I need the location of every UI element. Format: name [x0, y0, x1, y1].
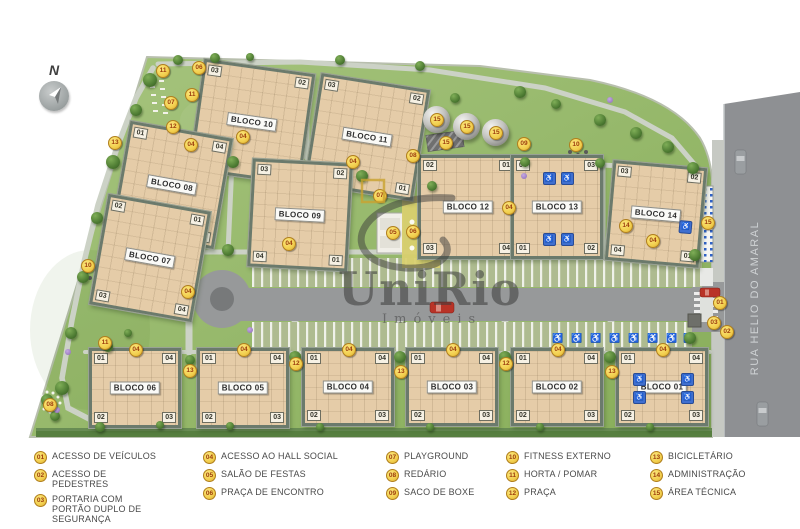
legend-item-number: 09 — [386, 487, 399, 500]
svg-text:♿: ♿ — [666, 332, 677, 343]
legend-item: 13BICICLETÁRIO — [650, 451, 790, 464]
legend-item: 15ÁREA TÉCNICA — [650, 487, 790, 500]
legend-item: 10FITNESS EXTERNO — [506, 451, 641, 464]
legend-item-number: 10 — [506, 451, 519, 464]
side-technical-panel — [700, 186, 713, 322]
legend-column: 13BICICLETÁRIO14ADMINISTRAÇÃO15ÁREA TÉCN… — [650, 451, 790, 505]
legend-item-number: 08 — [386, 469, 399, 482]
street-road: RUA HELIO DO AMARAL — [712, 92, 800, 437]
svg-text:♿: ♿ — [609, 332, 620, 343]
legend-item-number: 05 — [203, 469, 216, 482]
street-name: RUA HELIO DO AMARAL — [749, 221, 761, 375]
compass: N — [24, 62, 84, 130]
boxing-bag — [520, 168, 526, 180]
svg-text:♿: ♿ — [628, 332, 639, 343]
legend-item-number: 15 — [650, 487, 663, 500]
legend-item: 08REDÁRIO — [386, 469, 506, 482]
legend-item-number: 12 — [506, 487, 519, 500]
site-plan: RUA HELIO DO AMARAL — [0, 0, 800, 514]
legend-item-number: 06 — [203, 487, 216, 500]
red-car-entrance — [700, 288, 720, 297]
legend-item-label: SACO DE BOXE — [404, 487, 474, 497]
legend-item-label: PLAYGROUND — [404, 451, 468, 461]
svg-text:♿: ♿ — [552, 332, 563, 343]
legend-item-label: SALÃO DE FESTAS — [221, 469, 306, 479]
legend-column: 04ACESSO AO HALL SOCIAL05SALÃO DE FESTAS… — [203, 451, 378, 505]
legend-item-label: PRAÇA — [524, 487, 556, 497]
gray-car-north — [735, 150, 746, 174]
legend-column: 07PLAYGROUND08REDÁRIO09SACO DE BOXE — [386, 451, 506, 505]
legend-item: 05SALÃO DE FESTAS — [203, 469, 378, 482]
legend-item: 06PRAÇA DE ENCONTRO — [203, 487, 378, 500]
legend-item: 09SACO DE BOXE — [386, 487, 506, 500]
legend-column: 10FITNESS EXTERNO11HORTA / POMAR12PRAÇA — [506, 451, 641, 505]
legend-column: 01ACESSO DE VEÍCULOS02ACESSO DE PEDESTRE… — [34, 451, 158, 529]
legend-item-label: ACESSO DE PEDESTRES — [52, 469, 158, 489]
svg-text:♿: ♿ — [647, 332, 658, 343]
playground-area — [368, 184, 394, 196]
compass-north-label: N — [24, 62, 84, 78]
legend-item: 12PRAÇA — [506, 487, 641, 500]
legend-item: 02ACESSO DE PEDESTRES — [34, 469, 158, 489]
parking-upper — [252, 258, 702, 287]
legend-item: 01ACESSO DE VEÍCULOS — [34, 451, 158, 464]
compass-dial — [39, 81, 69, 111]
gatehouse — [688, 314, 701, 327]
legend-item: 14ADMINISTRAÇÃO — [650, 469, 790, 482]
legend-item-number: 14 — [650, 469, 663, 482]
svg-text:♿: ♿ — [590, 332, 601, 343]
legend-item-number: 07 — [386, 451, 399, 464]
legend-item-label: PORTARIA COM PORTÃO DUPLO DE SEGURANÇA — [52, 494, 158, 524]
terrain-graphics: RUA HELIO DO AMARAL — [0, 0, 800, 445]
legend-item-label: ADMINISTRAÇÃO — [668, 469, 746, 479]
legend-item-label: HORTA / POMAR — [524, 469, 597, 479]
legend-item-label: PRAÇA DE ENCONTRO — [221, 487, 324, 497]
legend-item: 07PLAYGROUND — [386, 451, 506, 464]
compass-needle-icon — [39, 81, 69, 111]
legend-item: 03PORTARIA COM PORTÃO DUPLO DE SEGURANÇA — [34, 494, 158, 524]
meeting-plaza — [402, 196, 440, 268]
legend-item-number: 04 — [203, 451, 216, 464]
party-hall — [377, 213, 403, 253]
legend-item: 11HORTA / POMAR — [506, 469, 641, 482]
red-car — [430, 302, 454, 313]
parking-lower: ♿♿ ♿♿ ♿♿ ♿♿ — [252, 322, 694, 351]
legend-item-label: REDÁRIO — [404, 469, 446, 479]
svg-text:♿: ♿ — [571, 332, 582, 343]
legend-item-label: ACESSO DE VEÍCULOS — [52, 451, 156, 461]
legend-item-label: ÁREA TÉCNICA — [668, 487, 736, 497]
legend-item-number: 03 — [34, 494, 47, 507]
legend-item-number: 13 — [650, 451, 663, 464]
svg-text:♿: ♿ — [683, 332, 694, 343]
legend-item: 04ACESSO AO HALL SOCIAL — [203, 451, 378, 464]
legend: 01ACESSO DE VEÍCULOS02ACESSO DE PEDESTRE… — [0, 445, 800, 514]
legend-item-number: 01 — [34, 451, 47, 464]
legend-item-label: FITNESS EXTERNO — [524, 451, 611, 461]
legend-item-number: 11 — [506, 469, 519, 482]
hedge-row — [36, 428, 712, 437]
legend-item-label: BICICLETÁRIO — [668, 451, 733, 461]
gray-car-south — [757, 402, 768, 426]
legend-item-label: ACESSO AO HALL SOCIAL — [221, 451, 338, 461]
legend-item-number: 02 — [34, 469, 47, 482]
